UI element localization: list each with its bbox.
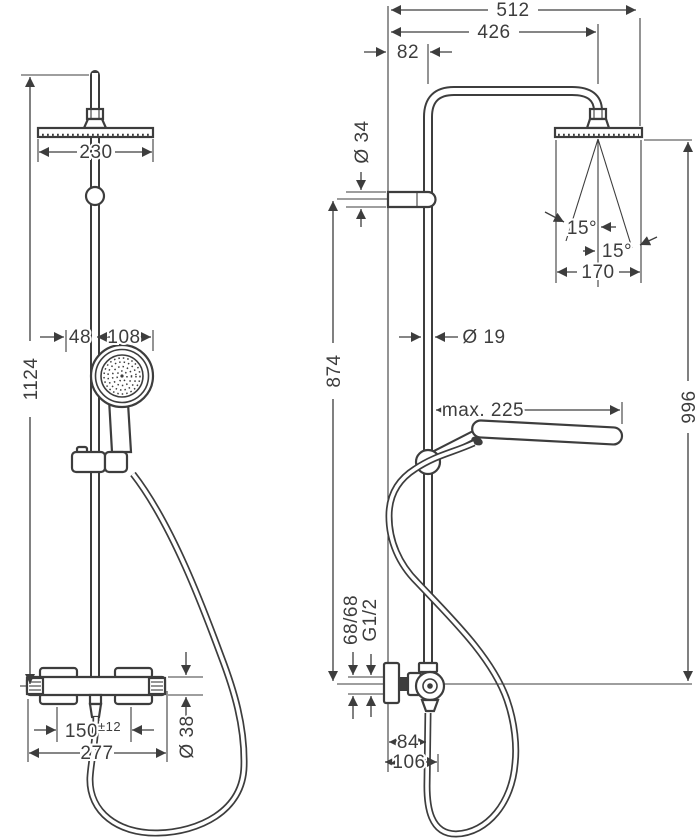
dim-handshower-reach: max. 225 (436, 400, 622, 424)
dim-wall-to-hose-label: 106 (392, 752, 425, 773)
dim-head-height-label: 996 (679, 390, 700, 423)
dim-overall-height-label: 1124 (21, 358, 42, 401)
dim-overall-reach-label: 512 (496, 0, 529, 21)
dim-connection-offset-label: 68/68 (341, 595, 362, 645)
dim-wall-to-pipe: 84 (389, 732, 426, 753)
shower-technical-drawing: 230 1124 48 108 150±12 (0, 0, 700, 838)
dim-handshower-offset-label: 48 (69, 327, 91, 348)
front-view: 230 1124 48 108 150±12 (20, 73, 244, 833)
dim-handshower-width-label: 108 (107, 327, 140, 348)
dim-wall-to-pipe-label: 84 (397, 732, 419, 753)
dim-head-depth-label: 170 (581, 262, 614, 283)
side-wall-bracket (388, 192, 436, 207)
dim-bracket-diameter: Ø 34 (346, 120, 386, 227)
side-overhead-shower (555, 109, 642, 137)
dim-top-wall-offset: 82 (364, 42, 452, 84)
side-valve-outlet (422, 700, 438, 711)
side-view: 512 426 82 Ø 34 874 (324, 0, 700, 834)
side-valve (384, 663, 444, 711)
dim-pipe-diameter: Ø 19 (399, 327, 506, 348)
dim-connection-spacing-label: 150±12 (65, 719, 121, 742)
dim-spray-angle-left-label: 15° (567, 218, 597, 239)
dim-pipe-diameter-label: Ø 19 (462, 327, 505, 348)
side-pipe (428, 91, 598, 679)
dim-valve-diameter-label: Ø 38 (177, 715, 198, 758)
front-handshower (91, 345, 153, 452)
dim-top-wall-offset-label: 82 (397, 42, 419, 63)
connection-spacing-value: 150 (65, 721, 98, 742)
dim-riser-height-label: 874 (324, 354, 345, 387)
dim-spray-angles: 15° 15° (545, 212, 657, 262)
dim-connection-offset: 68/68 G1/2 (341, 595, 384, 719)
front-ball-joint (86, 187, 104, 205)
dim-valve-width-label: 277 (80, 743, 113, 764)
dim-spray-angle-right-label: 15° (602, 241, 632, 262)
dim-head-width: 230 (38, 139, 153, 163)
dim-bracket-diameter-label: Ø 34 (352, 120, 373, 163)
dim-thread-size-label: G1/2 (360, 598, 381, 641)
side-handshower (416, 420, 622, 474)
dim-head-width-label: 230 (79, 142, 112, 163)
front-overhead-shower (38, 109, 153, 137)
dim-overall-height: 1124 (20, 75, 89, 686)
connection-tolerance-value: ±12 (98, 719, 121, 734)
dim-valve-diameter: Ø 38 (168, 652, 203, 759)
dim-handshower-reach-label: max. 225 (442, 400, 524, 421)
drawing-canvas: 230 1124 48 108 150±12 (0, 0, 700, 838)
front-valve-right-cap (149, 678, 165, 694)
dim-arm-reach-label: 426 (477, 22, 510, 43)
side-hose (389, 443, 516, 834)
dim-arm-reach: 426 (391, 22, 598, 84)
front-valve-outlet (90, 704, 101, 717)
